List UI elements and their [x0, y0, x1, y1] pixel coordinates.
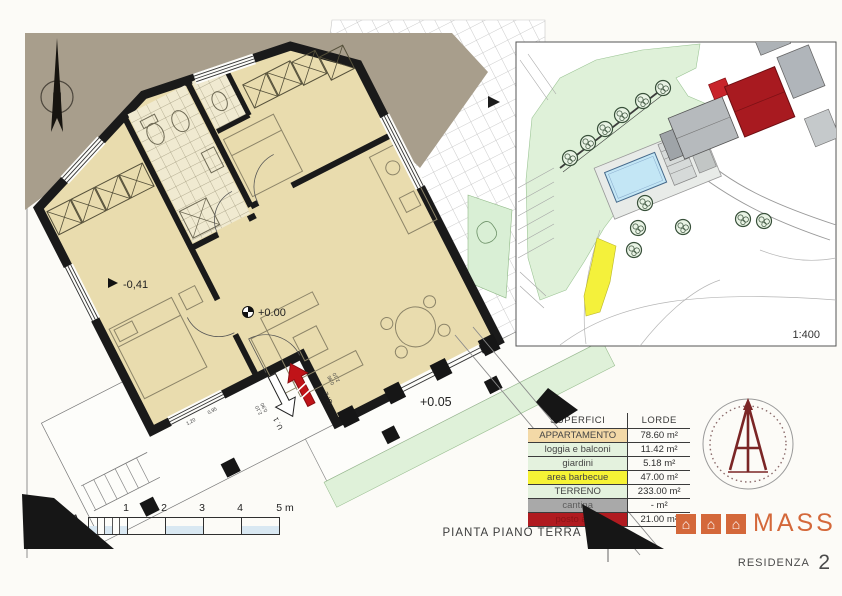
level-terrace: +0.05	[420, 395, 452, 409]
surfaces-table: SUPERFICI LORDE APPARTAMENTO 78.60 m² lo…	[528, 413, 690, 527]
brand-name: MASS	[753, 509, 836, 538]
row-label: posto auto	[528, 513, 627, 526]
residence-number: 2	[818, 551, 830, 574]
row-value: 233.00 m²	[627, 485, 690, 498]
table-row: posto auto 21.00 m²	[528, 513, 690, 527]
row-value: 78.60 m²	[627, 429, 690, 442]
scalebar-tick: 1	[116, 502, 136, 514]
company-logo: ⌂ ⌂ ⌂ MASS	[676, 509, 836, 538]
house-icon: ⌂	[676, 514, 696, 534]
table-row: giardini 5.18 m²	[528, 457, 690, 471]
row-label: cantina	[528, 499, 627, 512]
row-value: 47.00 m²	[627, 471, 690, 484]
row-value: 11.42 m²	[627, 443, 690, 456]
table-row: cantina - m²	[528, 499, 690, 513]
scalebar-end: 5 m	[270, 502, 300, 514]
level-living: +0.00	[258, 307, 286, 319]
scalebar-graphic	[88, 517, 280, 535]
scale-bar: PIANTA 1: 1 2 3 4 5 m	[28, 500, 298, 546]
table-row: area barbecue 47.00 m²	[528, 471, 690, 485]
table-row: APPARTAMENTO 78.60 m²	[528, 429, 690, 443]
residence-title: RESIDENZA 2	[690, 551, 830, 575]
table-header-lorde: LORDE	[627, 413, 690, 428]
scalebar-tick: 2	[154, 502, 174, 514]
row-label: APPARTAMENTO	[528, 429, 627, 442]
scalebar-tick: 3	[192, 502, 212, 514]
row-label: TERRENO	[528, 485, 627, 498]
row-label: giardini	[528, 457, 627, 470]
scalebar-tick: 4	[230, 502, 250, 514]
table-header-superfici: SUPERFICI	[528, 413, 627, 428]
level-marker	[243, 307, 254, 318]
house-icon: ⌂	[701, 514, 721, 534]
row-label: area barbecue	[528, 471, 627, 484]
house-icon: ⌂	[726, 514, 746, 534]
siteplan-scale: 1:400	[792, 329, 820, 341]
table-header-row: SUPERFICI LORDE	[528, 413, 690, 429]
scalebar-title: PIANTA	[32, 512, 80, 526]
plan-title: PIANTA PIANO TERRA	[424, 527, 600, 539]
row-value: 5.18 m²	[627, 457, 690, 470]
level-bedroom: -0,41	[123, 279, 148, 291]
site-plan: 1:400	[516, 27, 840, 346]
residence-label: RESIDENZA	[738, 557, 810, 569]
table-row: loggia e balconi 11.42 m²	[528, 443, 690, 457]
drawing-sheet: N	[0, 0, 842, 596]
garden-patch	[468, 195, 512, 298]
architect-stamp-icon	[703, 398, 793, 489]
table-row: TERRENO 233.00 m²	[528, 485, 690, 499]
scalebar-scale: 1:	[34, 527, 42, 538]
row-label: loggia e balconi	[528, 443, 627, 456]
